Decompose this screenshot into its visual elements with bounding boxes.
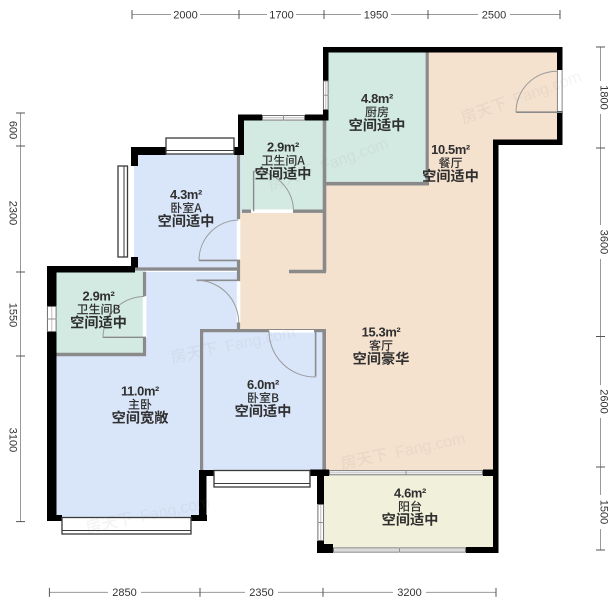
svg-text:3600: 3600 — [598, 230, 609, 254]
svg-text:11.0m²: 11.0m² — [121, 384, 160, 399]
svg-text:2350: 2350 — [249, 587, 273, 599]
svg-text:3100: 3100 — [7, 428, 19, 452]
svg-text:4.3m²: 4.3m² — [170, 187, 203, 202]
svg-text:4.6m²: 4.6m² — [394, 486, 427, 501]
svg-text:4.8m²: 4.8m² — [361, 91, 394, 106]
svg-text:2.9m²: 2.9m² — [83, 289, 116, 304]
svg-text:1700: 1700 — [269, 9, 293, 21]
svg-text:15.3m²: 15.3m² — [362, 325, 402, 340]
svg-text:1800: 1800 — [598, 85, 609, 109]
svg-text:2600: 2600 — [598, 389, 609, 413]
svg-text:3200: 3200 — [397, 587, 421, 599]
svg-text:600: 600 — [7, 121, 19, 139]
svg-text:1550: 1550 — [7, 303, 19, 327]
svg-text:2500: 2500 — [482, 9, 506, 21]
svg-text:6.0m²: 6.0m² — [247, 377, 280, 392]
svg-text:2850: 2850 — [112, 587, 136, 599]
svg-text:2.9m²: 2.9m² — [267, 140, 300, 155]
svg-text:2000: 2000 — [173, 9, 197, 21]
svg-text:1500: 1500 — [598, 500, 609, 524]
svg-text:10.5m²: 10.5m² — [431, 142, 471, 157]
svg-text:1950: 1950 — [364, 9, 388, 21]
svg-text:2300: 2300 — [7, 201, 19, 225]
